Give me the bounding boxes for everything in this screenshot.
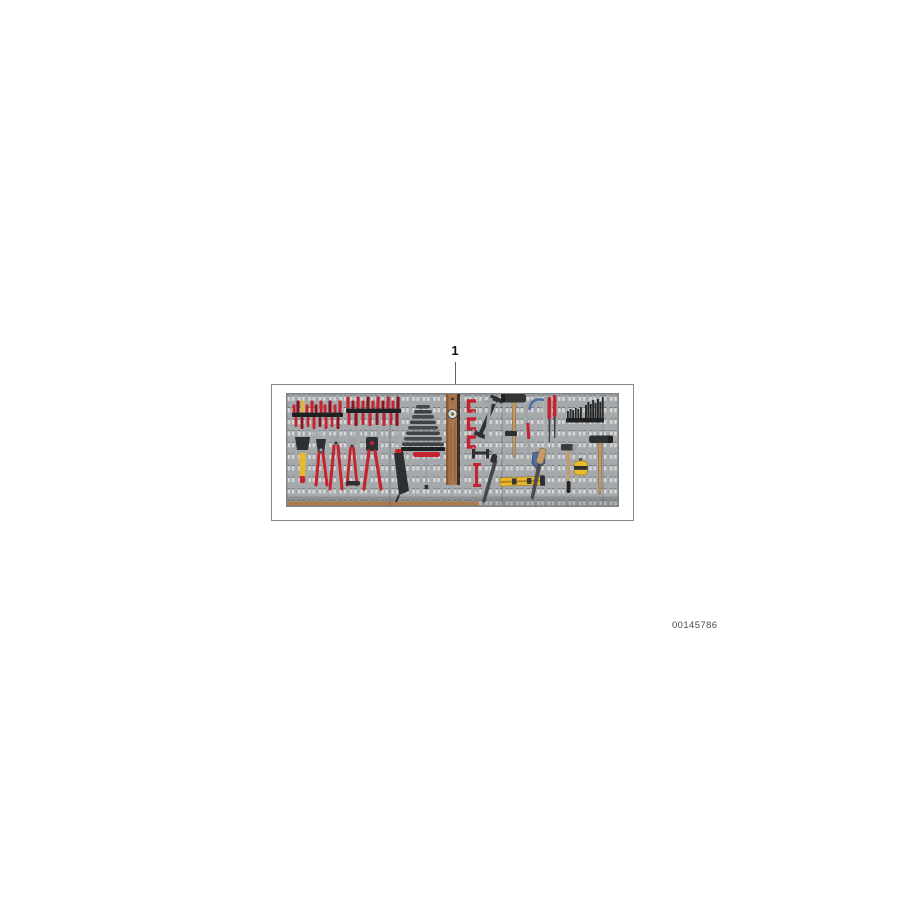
document-number: 00145786	[672, 620, 717, 631]
part-frame	[271, 384, 634, 521]
page-canvas: 1	[0, 0, 900, 900]
wooden-level-icon	[446, 394, 460, 485]
callout-leader-line	[455, 362, 456, 384]
black-bar-tool	[346, 481, 360, 486]
bit-block	[505, 431, 517, 436]
tool-board-illustration	[286, 393, 619, 507]
shelf-edge	[288, 502, 479, 507]
callout-number: 1	[447, 344, 463, 358]
